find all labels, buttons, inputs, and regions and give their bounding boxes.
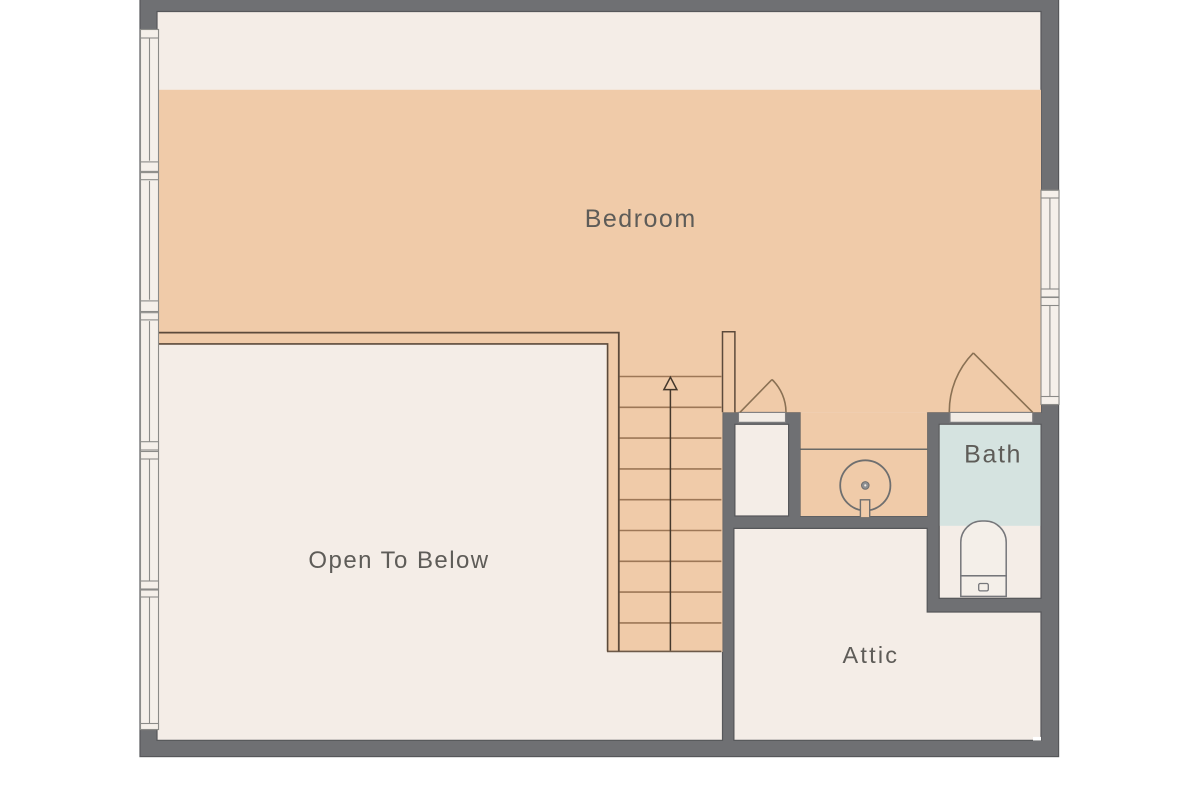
svg-text:Open To Below: Open To Below [308, 547, 489, 574]
svg-text:Bedroom: Bedroom [585, 205, 697, 233]
svg-text:Bath: Bath [964, 441, 1022, 469]
svg-text:Attic: Attic [843, 642, 900, 668]
